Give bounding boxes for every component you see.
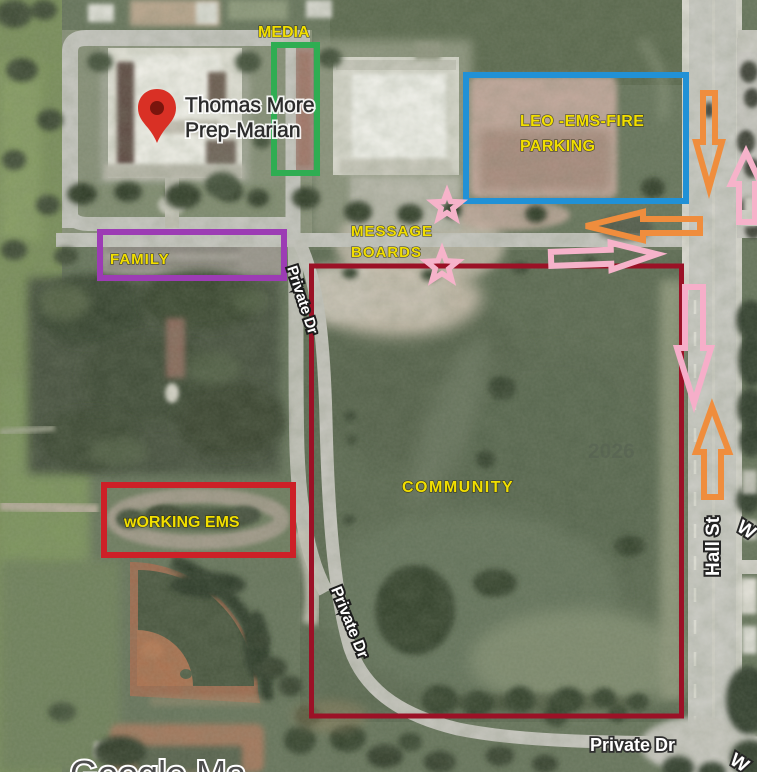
svg-text:COMMUNITY: COMMUNITY bbox=[402, 479, 514, 496]
svg-text:MEDIA: MEDIA bbox=[258, 24, 310, 41]
svg-text:Hall St: Hall St bbox=[703, 516, 724, 576]
svg-text:Prep-Marian: Prep-Marian bbox=[185, 119, 301, 142]
svg-text:FAMILY: FAMILY bbox=[110, 251, 170, 268]
svg-text:wORKING EMS: wORKING EMS bbox=[123, 514, 240, 531]
svg-text:MESSAGE: MESSAGE bbox=[351, 223, 433, 240]
svg-text:Thomas More: Thomas More bbox=[185, 94, 315, 117]
svg-text:PARKING: PARKING bbox=[520, 138, 595, 155]
svg-text:2026: 2026 bbox=[588, 440, 635, 463]
svg-text:Google Ma: Google Ma bbox=[70, 753, 247, 772]
svg-text:Private Dr: Private Dr bbox=[590, 735, 675, 755]
svg-text:BOARDS: BOARDS bbox=[351, 244, 422, 261]
svg-text:LEO -EMS-FIRE: LEO -EMS-FIRE bbox=[520, 113, 644, 130]
